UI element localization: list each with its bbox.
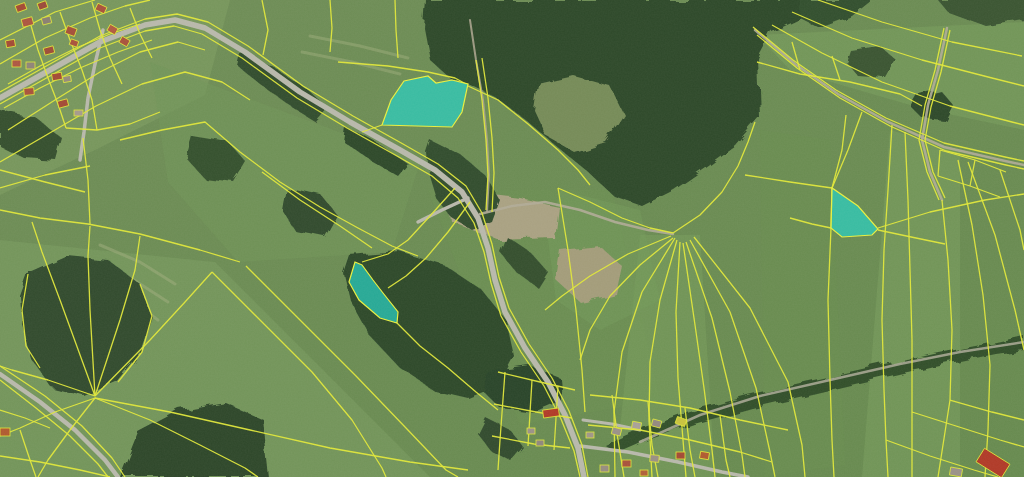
cadastral-map-viewport[interactable] (0, 0, 1024, 477)
cadastral-map[interactable] (0, 0, 1024, 477)
photo-grain-overlay (0, 0, 1024, 477)
